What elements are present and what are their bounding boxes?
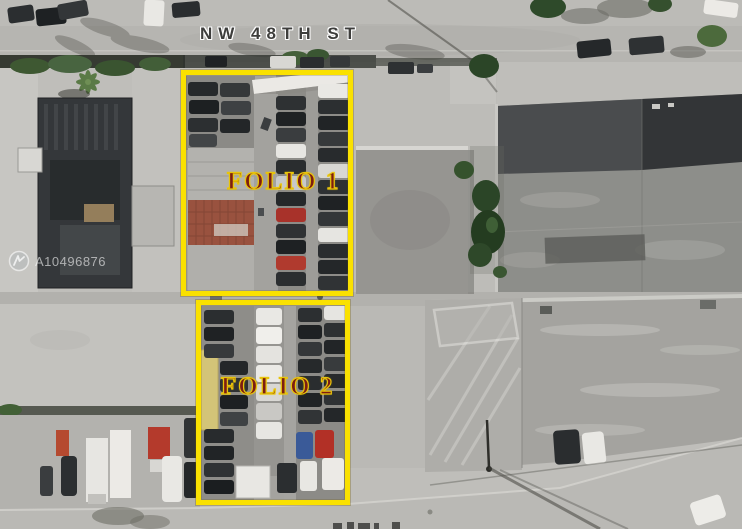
parcel-label-folio1: FOLIO 1 xyxy=(227,168,340,196)
street-label-nw-48th-st: NW 48TH ST xyxy=(200,24,361,44)
parcel-outline-folio2 xyxy=(196,300,350,505)
aerial-scene xyxy=(0,0,742,529)
mls-swoosh-icon xyxy=(8,250,30,272)
small-light-roof xyxy=(132,186,174,246)
mls-watermark: A10496876 xyxy=(8,250,106,272)
right-warehouse-north xyxy=(495,94,742,292)
red-truck xyxy=(148,427,170,459)
parcel-label-folio2: FOLIO 2 xyxy=(221,373,334,401)
aerial-listing-photo: FOLIO 1 FOLIO 2 NW 48TH ST A10496876 xyxy=(0,0,742,529)
tree xyxy=(469,54,499,78)
white-roof-outline xyxy=(434,303,518,346)
mls-number: A10496876 xyxy=(35,254,106,269)
